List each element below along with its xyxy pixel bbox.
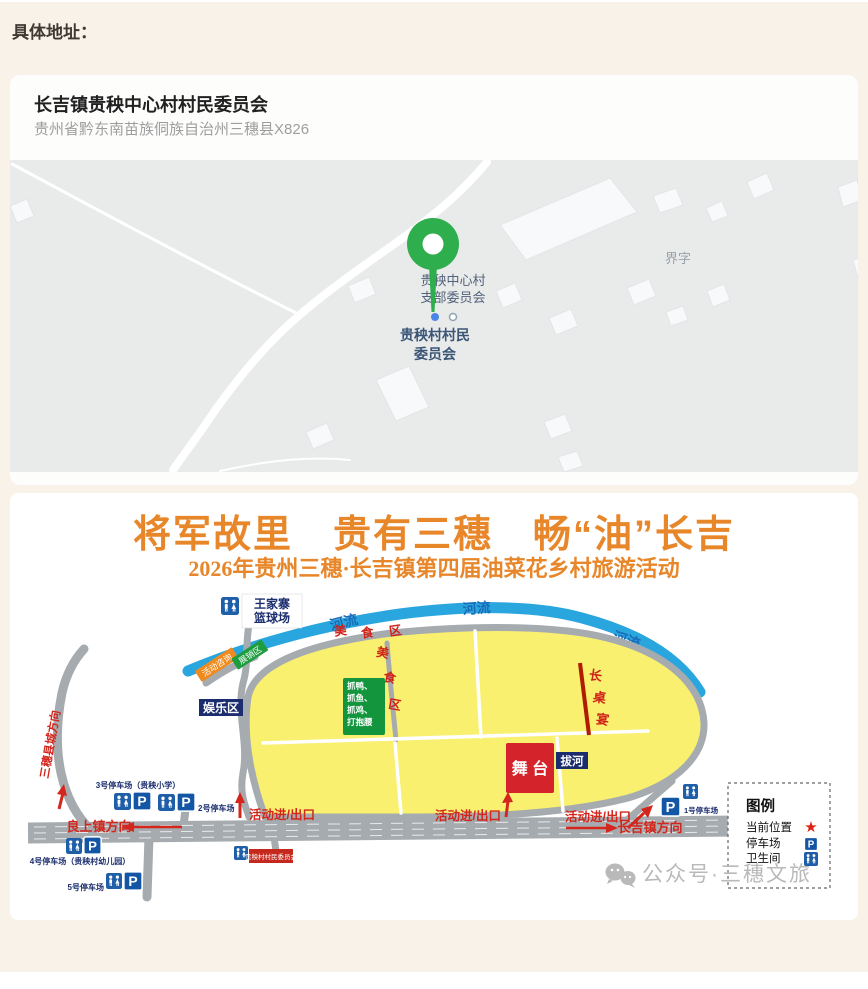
location-address: 贵州省黔东南苗族侗族自治州三穗县X826 bbox=[34, 118, 309, 139]
parking-icon bbox=[177, 793, 195, 811]
parking5-label: 5号停车场 bbox=[68, 882, 104, 892]
section-label: 具体地址： bbox=[12, 18, 97, 43]
svg-text:区: 区 bbox=[388, 623, 403, 639]
svg-text:贵秧村村民: 贵秧村村民 bbox=[400, 327, 470, 343]
parking-icon bbox=[133, 792, 151, 810]
stage-label: 舞 台 bbox=[512, 759, 548, 778]
legend-title: 图例 bbox=[746, 797, 775, 815]
direction-liangshang: 良上镇方向 bbox=[66, 819, 131, 834]
svg-text:打抱腰: 打抱腰 bbox=[347, 717, 373, 727]
map-canvas[interactable]: 界字 贵秧中心村 支部委员会 贵秧村村民 委员会 bbox=[10, 160, 858, 472]
svg-text:篮球场: 篮球场 bbox=[253, 610, 290, 625]
map-dot-secondary bbox=[450, 314, 457, 321]
map-area-label: 界字 bbox=[665, 251, 691, 266]
svg-text:王家寨: 王家寨 bbox=[254, 596, 290, 611]
star-icon: ★ bbox=[804, 819, 817, 836]
svg-text:宴: 宴 bbox=[595, 711, 610, 728]
committee-label: 贵秧村村民委员会 bbox=[245, 852, 298, 861]
legend-parking-label: 停车场 bbox=[746, 836, 781, 850]
svg-text:活动进/出口: 活动进/出口 bbox=[435, 808, 501, 823]
entrance-labels: 活动进/出口 活动进/出口 活动进/出口 bbox=[249, 807, 631, 824]
toilet-icon bbox=[114, 793, 131, 810]
svg-text:抓鱼、: 抓鱼、 bbox=[347, 693, 373, 703]
tug-label: 拔河 bbox=[561, 754, 584, 768]
svg-text:抓鸡、: 抓鸡、 bbox=[347, 705, 373, 715]
svg-text:委员会: 委员会 bbox=[413, 346, 457, 362]
direction-changji: 长吉镇方向 bbox=[617, 820, 682, 835]
parking-icon bbox=[661, 797, 680, 816]
location-card[interactable]: 长吉镇贵秧中心村村民委员会 贵州省黔东南苗族侗族自治州三穗县X826 bbox=[10, 75, 858, 485]
parking2-label: 2号停车场 bbox=[198, 803, 234, 813]
svg-text:食: 食 bbox=[359, 624, 375, 641]
wechat-icon bbox=[606, 864, 636, 889]
parking-icon bbox=[124, 872, 142, 890]
poster-title: 将军故里 贵有三穗 畅“油”长吉 bbox=[10, 503, 858, 558]
svg-text:支部委员会: 支部委员会 bbox=[420, 290, 485, 305]
svg-text:河流: 河流 bbox=[462, 599, 491, 617]
map-dot-primary bbox=[431, 313, 439, 321]
fun-zone-label: 娱乐区 bbox=[203, 700, 239, 715]
parking3-label: 3号停车场（贵秧小学） bbox=[96, 780, 180, 790]
toilet-icon bbox=[683, 784, 698, 799]
toilet-icon bbox=[221, 597, 239, 615]
watermark-text: 公众号·三穗文旅 bbox=[642, 863, 812, 886]
parking-icon bbox=[805, 838, 818, 851]
parking1-label: 1号停车场 bbox=[684, 805, 719, 815]
watermark: 公众号·三穗文旅 bbox=[606, 863, 813, 888]
toilet-icon bbox=[106, 873, 122, 889]
event-map-poster: 将军故里 贵有三穗 畅“油”长吉 2026年贵州三穗·长吉镇第四届油菜花乡村旅游… bbox=[10, 493, 858, 920]
svg-text:活动进/出口: 活动进/出口 bbox=[249, 807, 315, 822]
poster-subtitle: 2026年贵州三穗·长吉镇第四届油菜花乡村旅游活动 bbox=[10, 551, 858, 583]
toilet-icon bbox=[66, 838, 82, 854]
parking4-label: 4号停车场（贵秧村幼儿园） bbox=[30, 856, 130, 866]
svg-text:美: 美 bbox=[333, 622, 348, 639]
basketball-label: 王家寨 篮球场 bbox=[253, 596, 290, 625]
legend-current-label: 当前位置 bbox=[746, 820, 792, 834]
svg-text:抓鸭、: 抓鸭、 bbox=[347, 681, 373, 691]
location-title: 长吉镇贵秧中心村村民委员会 bbox=[34, 91, 268, 117]
parking-icon bbox=[84, 837, 101, 854]
toilet-icon bbox=[158, 794, 175, 811]
poster-map: P 河流 河流 河流 bbox=[10, 585, 858, 920]
